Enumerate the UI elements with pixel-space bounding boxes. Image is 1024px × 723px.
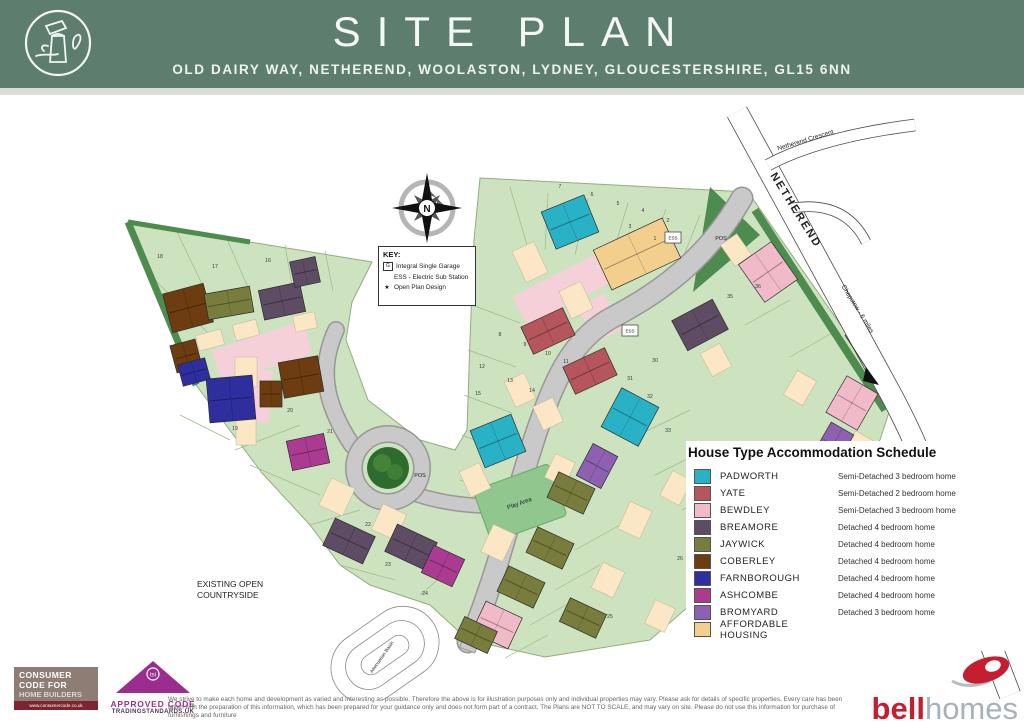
plot-number: 17 — [212, 264, 218, 270]
plot-number: 16 — [265, 258, 271, 264]
consumer-code-line1: CONSUMER — [19, 670, 93, 680]
legend-house-desc: Detached 4 bedroom home — [838, 574, 935, 583]
legend-house-desc: Semi-Detached 3 bedroom home — [838, 506, 956, 515]
map-key-box: KEY: GIntegral Single GarageESS - Electr… — [378, 246, 476, 306]
disclaimer-text: We strive to make each home and developm… — [168, 696, 856, 720]
legend-row: JAYWICKDetached 4 bedroom home — [686, 536, 1018, 553]
plot-number: 22 — [365, 522, 371, 528]
legend-swatch — [694, 469, 711, 484]
driveway — [236, 419, 256, 445]
legend-house-name: AFFORDABLE HOUSING — [720, 619, 838, 641]
plot-number: 5 — [617, 201, 620, 207]
legend-house-name: PADWORTH — [720, 471, 838, 482]
plot-number: 20 — [287, 408, 293, 414]
legend-swatch — [694, 486, 711, 501]
legend-house-desc: Detached 4 bedroom home — [838, 540, 935, 549]
site-address: OLD DAIRY WAY, NETHEREND, WOOLASTON, LYD… — [0, 62, 1024, 77]
svg-text:tsi: tsi — [150, 673, 156, 679]
garage-icon: G — [383, 262, 393, 271]
plot-number: 24 — [422, 591, 428, 597]
plot-number: 14 — [529, 388, 535, 394]
approved-code-triangle-icon: tsi — [116, 661, 190, 693]
legend-swatch — [694, 520, 711, 535]
header-divider — [0, 88, 1024, 95]
bellhomes-logo: bellhomes — [868, 655, 1018, 723]
plot-number: 18 — [157, 254, 163, 260]
site-plan-page: SITE PLAN OLD DAIRY WAY, NETHEREND, WOOL… — [0, 0, 1024, 723]
legend-house-desc: Detached 4 bedroom home — [838, 591, 935, 600]
legend-house-name: FARNBOROUGH — [720, 573, 838, 584]
legend-house-name: BREAMORE — [720, 522, 838, 533]
legend-house-name: YATE — [720, 488, 838, 499]
map-label: EXISTING OPEN — [197, 579, 263, 589]
legend-house-name: BEWDLEY — [720, 505, 838, 516]
key-item: ESS - Electric Sub Station — [383, 274, 471, 281]
plot-number: 1 — [654, 236, 657, 242]
homes-wordmark: homes — [925, 691, 1018, 723]
key-item-label: ESS - Electric Sub Station — [394, 274, 468, 281]
consumer-code-logo: CONSUMER CODE FOR HOME BUILDERS www.cons… — [14, 667, 98, 710]
plot-number: 9 — [524, 342, 527, 348]
plot-number: 23 — [385, 562, 391, 568]
tree-foliage — [387, 464, 403, 480]
legend-row: AFFORDABLE HOUSING — [686, 621, 1018, 638]
house-farnborough — [206, 375, 256, 423]
legend-house-desc: Semi-Detached 2 bedroom home — [838, 489, 956, 498]
house-breamore — [290, 257, 321, 288]
legend-swatch — [694, 503, 711, 518]
plot-number: 26 — [677, 556, 683, 562]
house-coberley — [278, 356, 324, 398]
legend-swatch — [694, 588, 711, 603]
legend-swatch — [694, 554, 711, 569]
plot-number: 33 — [665, 428, 671, 434]
plot-number: 3 — [629, 224, 632, 230]
legend-house-name: JAYWICK — [720, 539, 838, 550]
map-label: POS — [414, 473, 426, 479]
house-coberley — [260, 381, 282, 407]
plot-number: 7 — [559, 184, 562, 190]
legend-house-name: ASHCOMBE — [720, 590, 838, 601]
map-label: POS — [715, 236, 727, 242]
page-title: SITE PLAN — [0, 8, 1024, 56]
consumer-code-line2: CODE FOR — [19, 680, 93, 690]
plot-number: 8 — [499, 332, 502, 338]
key-item-label: Integral Single Garage — [396, 263, 460, 270]
ess-label: ESS — [625, 329, 634, 334]
legend-row: BREAMOREDetached 4 bedroom home — [686, 519, 1018, 536]
legend-swatch — [694, 537, 711, 552]
plot-number: 31 — [627, 376, 633, 382]
plot-number: 11 — [563, 359, 568, 365]
open-plan-star-icon: ★ — [383, 284, 391, 291]
legend-row: PADWORTHSemi-Detached 3 bedroom home — [686, 468, 1018, 485]
key-title: KEY: — [383, 250, 471, 259]
plot-number: 36 — [755, 284, 761, 290]
key-item: ★Open Plan Design — [383, 284, 471, 291]
plot-number: 2 — [667, 218, 670, 224]
plot-number: 10 — [545, 351, 551, 357]
footer: CONSUMER CODE FOR HOME BUILDERS www.cons… — [0, 653, 1024, 723]
plot-number: 25 — [607, 614, 613, 620]
legend-house-name: BROMYARD — [720, 607, 838, 618]
legend-row: COBERLEYDetached 4 bedroom home — [686, 553, 1018, 570]
legend-house-desc: Detached 3 bedroom home — [838, 608, 935, 617]
key-item: GIntegral Single Garage — [383, 262, 471, 271]
legend-house-desc: Semi-Detached 3 bedroom home — [838, 472, 956, 481]
plot-number: 15 — [475, 391, 481, 397]
bell-wordmark: bell — [872, 691, 925, 723]
legend-swatch — [694, 622, 711, 637]
legend-title: House Type Accommodation Schedule — [688, 445, 1018, 460]
plot-number: 21 — [327, 429, 333, 435]
bellhomes-swoosh-icon — [948, 655, 1014, 689]
compass-rose: N — [392, 173, 462, 243]
consumer-code-url: www.consumercode.co.uk — [14, 701, 98, 710]
plot-number: 19 — [232, 426, 238, 432]
header-banner: SITE PLAN OLD DAIRY WAY, NETHEREND, WOOL… — [0, 0, 1024, 88]
plot-number: 4 — [642, 208, 645, 214]
legend-row: YATESemi-Detached 2 bedroom home — [686, 485, 1018, 502]
consumer-code-line3: HOME BUILDERS — [19, 690, 93, 699]
legend-house-desc: Detached 4 bedroom home — [838, 557, 935, 566]
legend-swatch — [694, 571, 711, 586]
plot-number: 6 — [591, 192, 594, 198]
plot-number: 32 — [647, 394, 653, 400]
key-item-label: Open Plan Design — [394, 284, 446, 291]
plot-number: 35 — [727, 294, 733, 300]
legend-row: BEWDLEYSemi-Detached 3 bedroom home — [686, 502, 1018, 519]
legend-row: FARNBOROUGHDetached 4 bedroom home — [686, 570, 1018, 587]
plot-number: 13 — [507, 378, 513, 384]
legend-swatch — [694, 605, 711, 620]
house-type-schedule: House Type Accommodation Schedule PADWOR… — [686, 441, 1018, 651]
map-label: COUNTRYSIDE — [197, 590, 259, 600]
plot-number: 30 — [652, 358, 658, 364]
legend-house-name: COBERLEY — [720, 556, 838, 567]
plot-number: 12 — [479, 364, 485, 370]
ess-label: ESS — [668, 236, 677, 241]
legend-house-desc: Detached 4 bedroom home — [838, 523, 935, 532]
svg-text:N: N — [423, 204, 430, 215]
legend-row: ASHCOMBEDetached 4 bedroom home — [686, 587, 1018, 604]
